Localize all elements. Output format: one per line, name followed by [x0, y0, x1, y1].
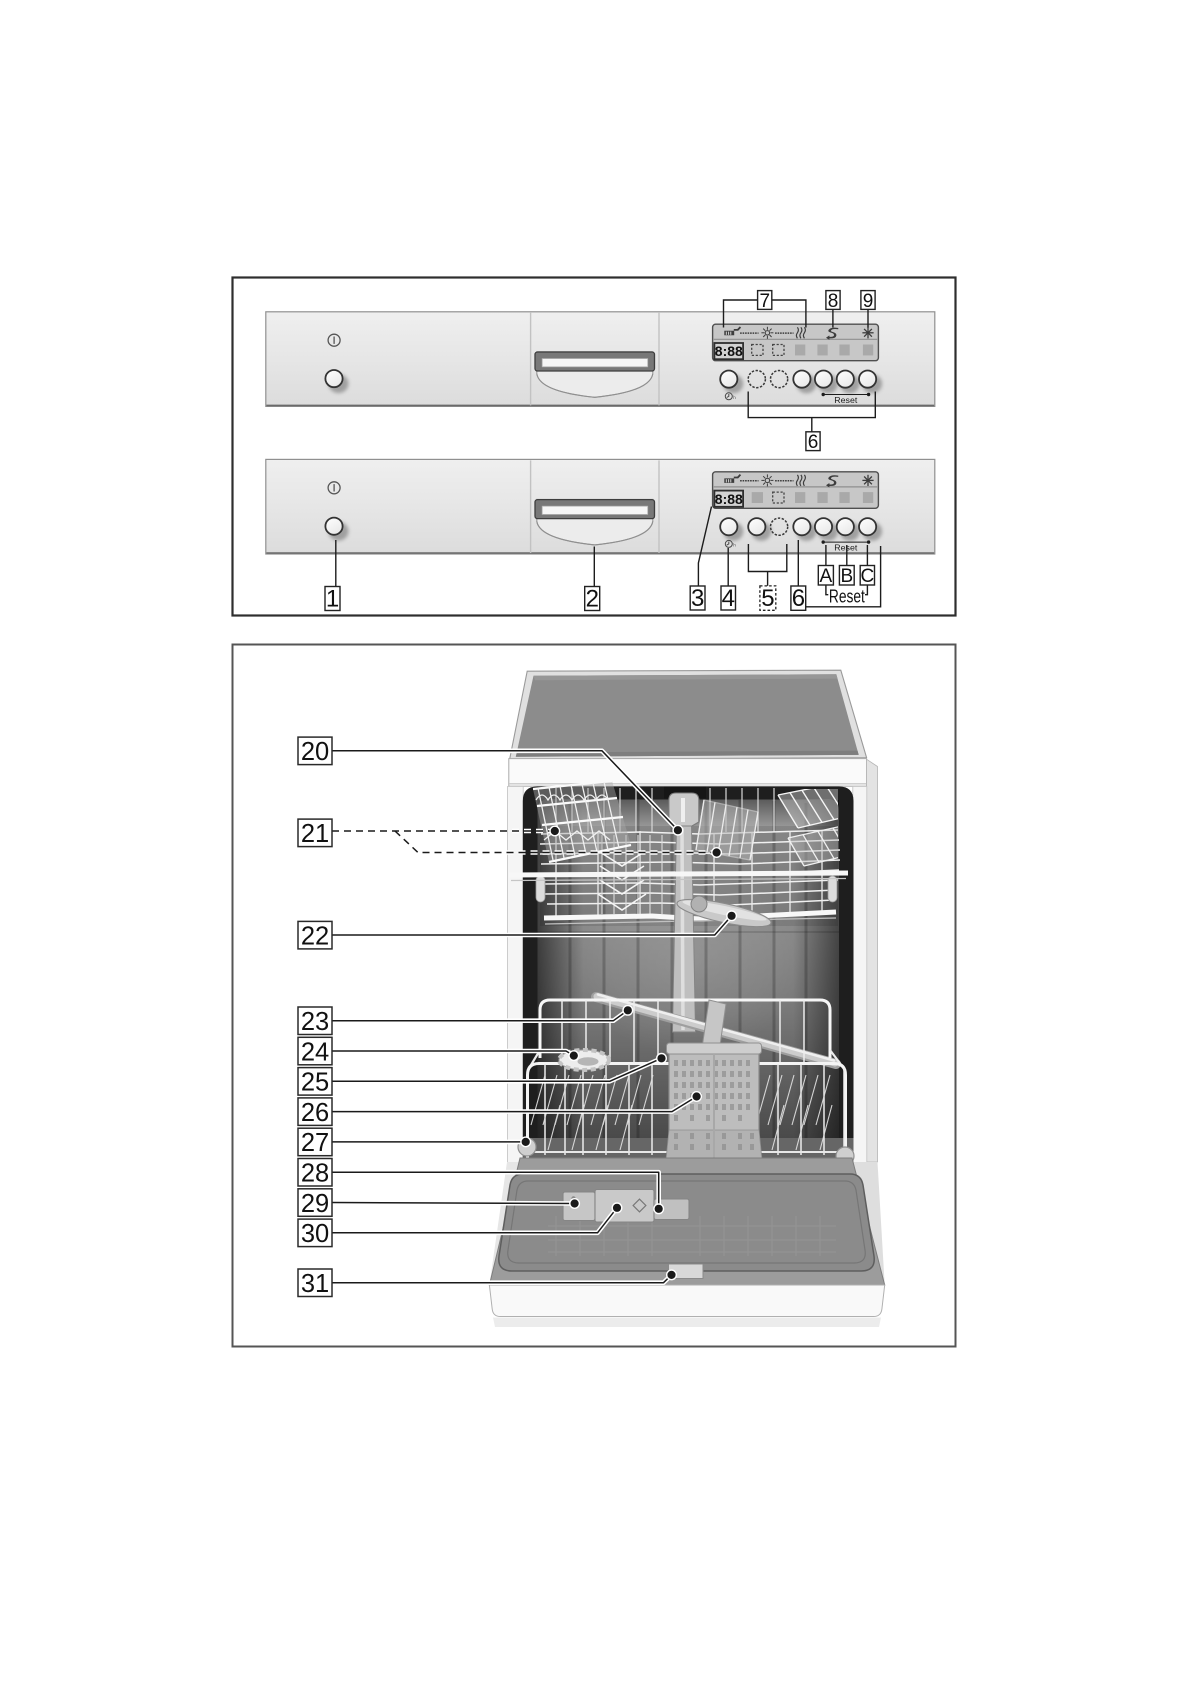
svg-text:20: 20	[301, 738, 329, 766]
svg-text:3: 3	[691, 585, 704, 612]
svg-text:1: 1	[326, 586, 339, 613]
svg-text:31: 31	[301, 1270, 329, 1298]
svg-text:6: 6	[792, 585, 805, 612]
svg-text:A: A	[820, 566, 833, 587]
svg-text:23: 23	[301, 1008, 329, 1036]
svg-text:30: 30	[301, 1220, 329, 1248]
svg-text:26: 26	[301, 1099, 329, 1127]
svg-text:25: 25	[301, 1069, 329, 1097]
svg-text:22: 22	[301, 922, 329, 950]
svg-text:7: 7	[760, 291, 771, 312]
svg-text:21: 21	[301, 820, 329, 848]
svg-text:9: 9	[863, 291, 874, 312]
svg-text:4: 4	[722, 585, 735, 612]
svg-text:28: 28	[301, 1160, 329, 1188]
svg-text:B: B	[840, 566, 853, 587]
svg-text:5: 5	[761, 585, 774, 612]
svg-text:29: 29	[301, 1190, 329, 1218]
svg-text:Reset: Reset	[829, 587, 865, 607]
svg-text:27: 27	[301, 1129, 329, 1157]
svg-text:6: 6	[808, 432, 819, 453]
svg-text:24: 24	[301, 1038, 329, 1066]
svg-text:C: C	[861, 566, 875, 587]
svg-text:2: 2	[586, 586, 599, 613]
svg-text:8: 8	[828, 291, 839, 312]
